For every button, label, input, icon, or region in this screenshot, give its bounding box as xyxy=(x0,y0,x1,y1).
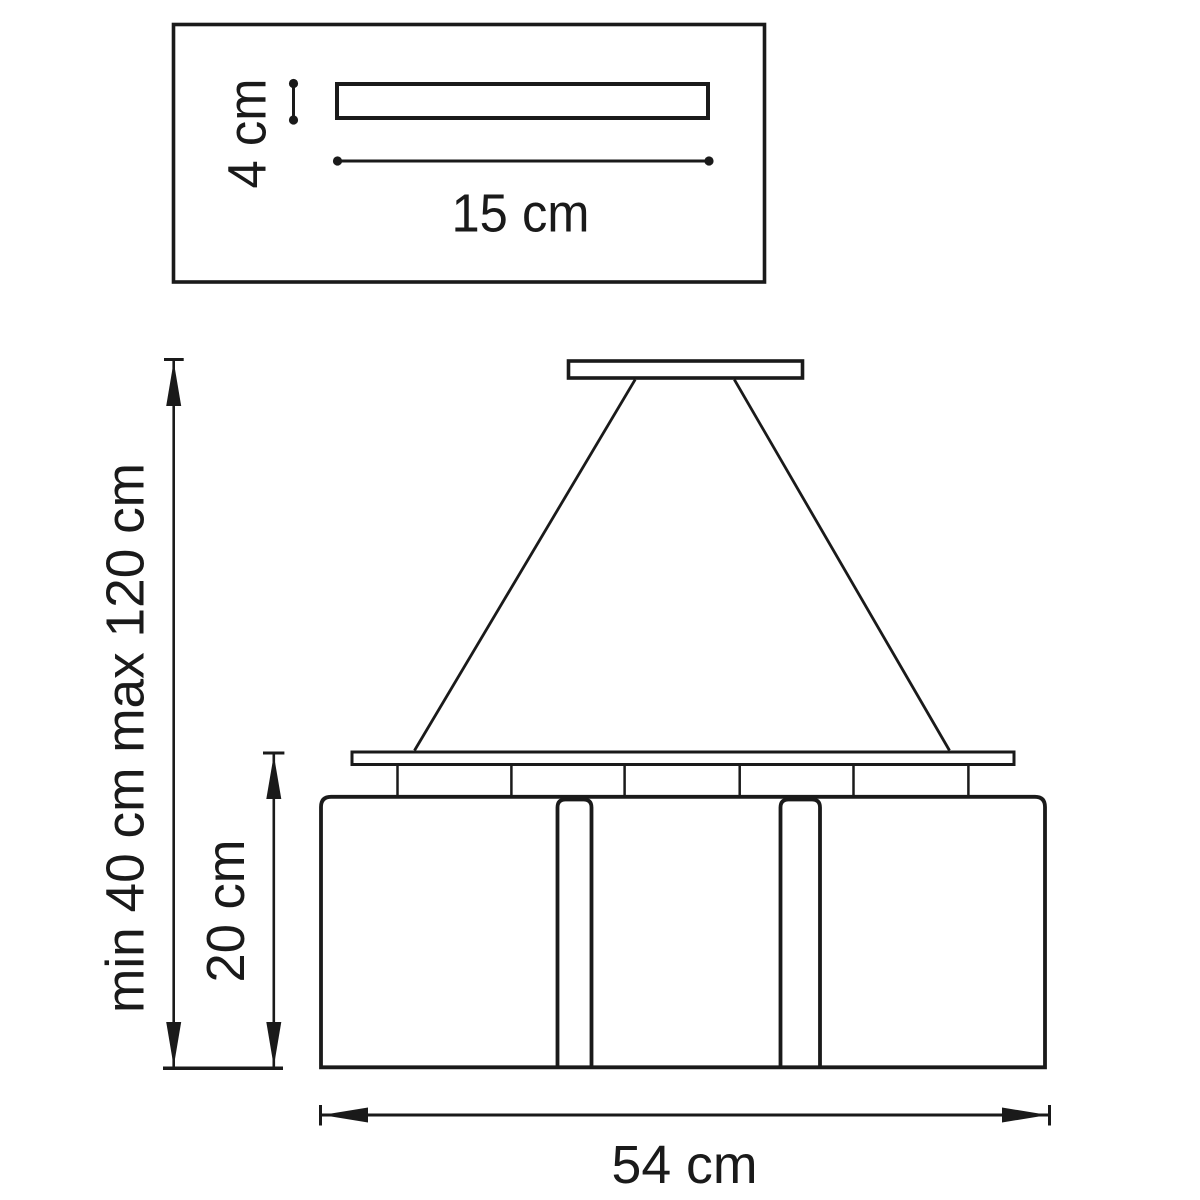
svg-text:15 cm: 15 cm xyxy=(452,184,590,244)
svg-text:min 40 cm max 120 cm: min 40 cm max 120 cm xyxy=(96,463,156,1013)
svg-text:20 cm: 20 cm xyxy=(196,840,256,983)
svg-text:54 cm: 54 cm xyxy=(612,1135,758,1195)
svg-text:4 cm: 4 cm xyxy=(218,79,278,189)
